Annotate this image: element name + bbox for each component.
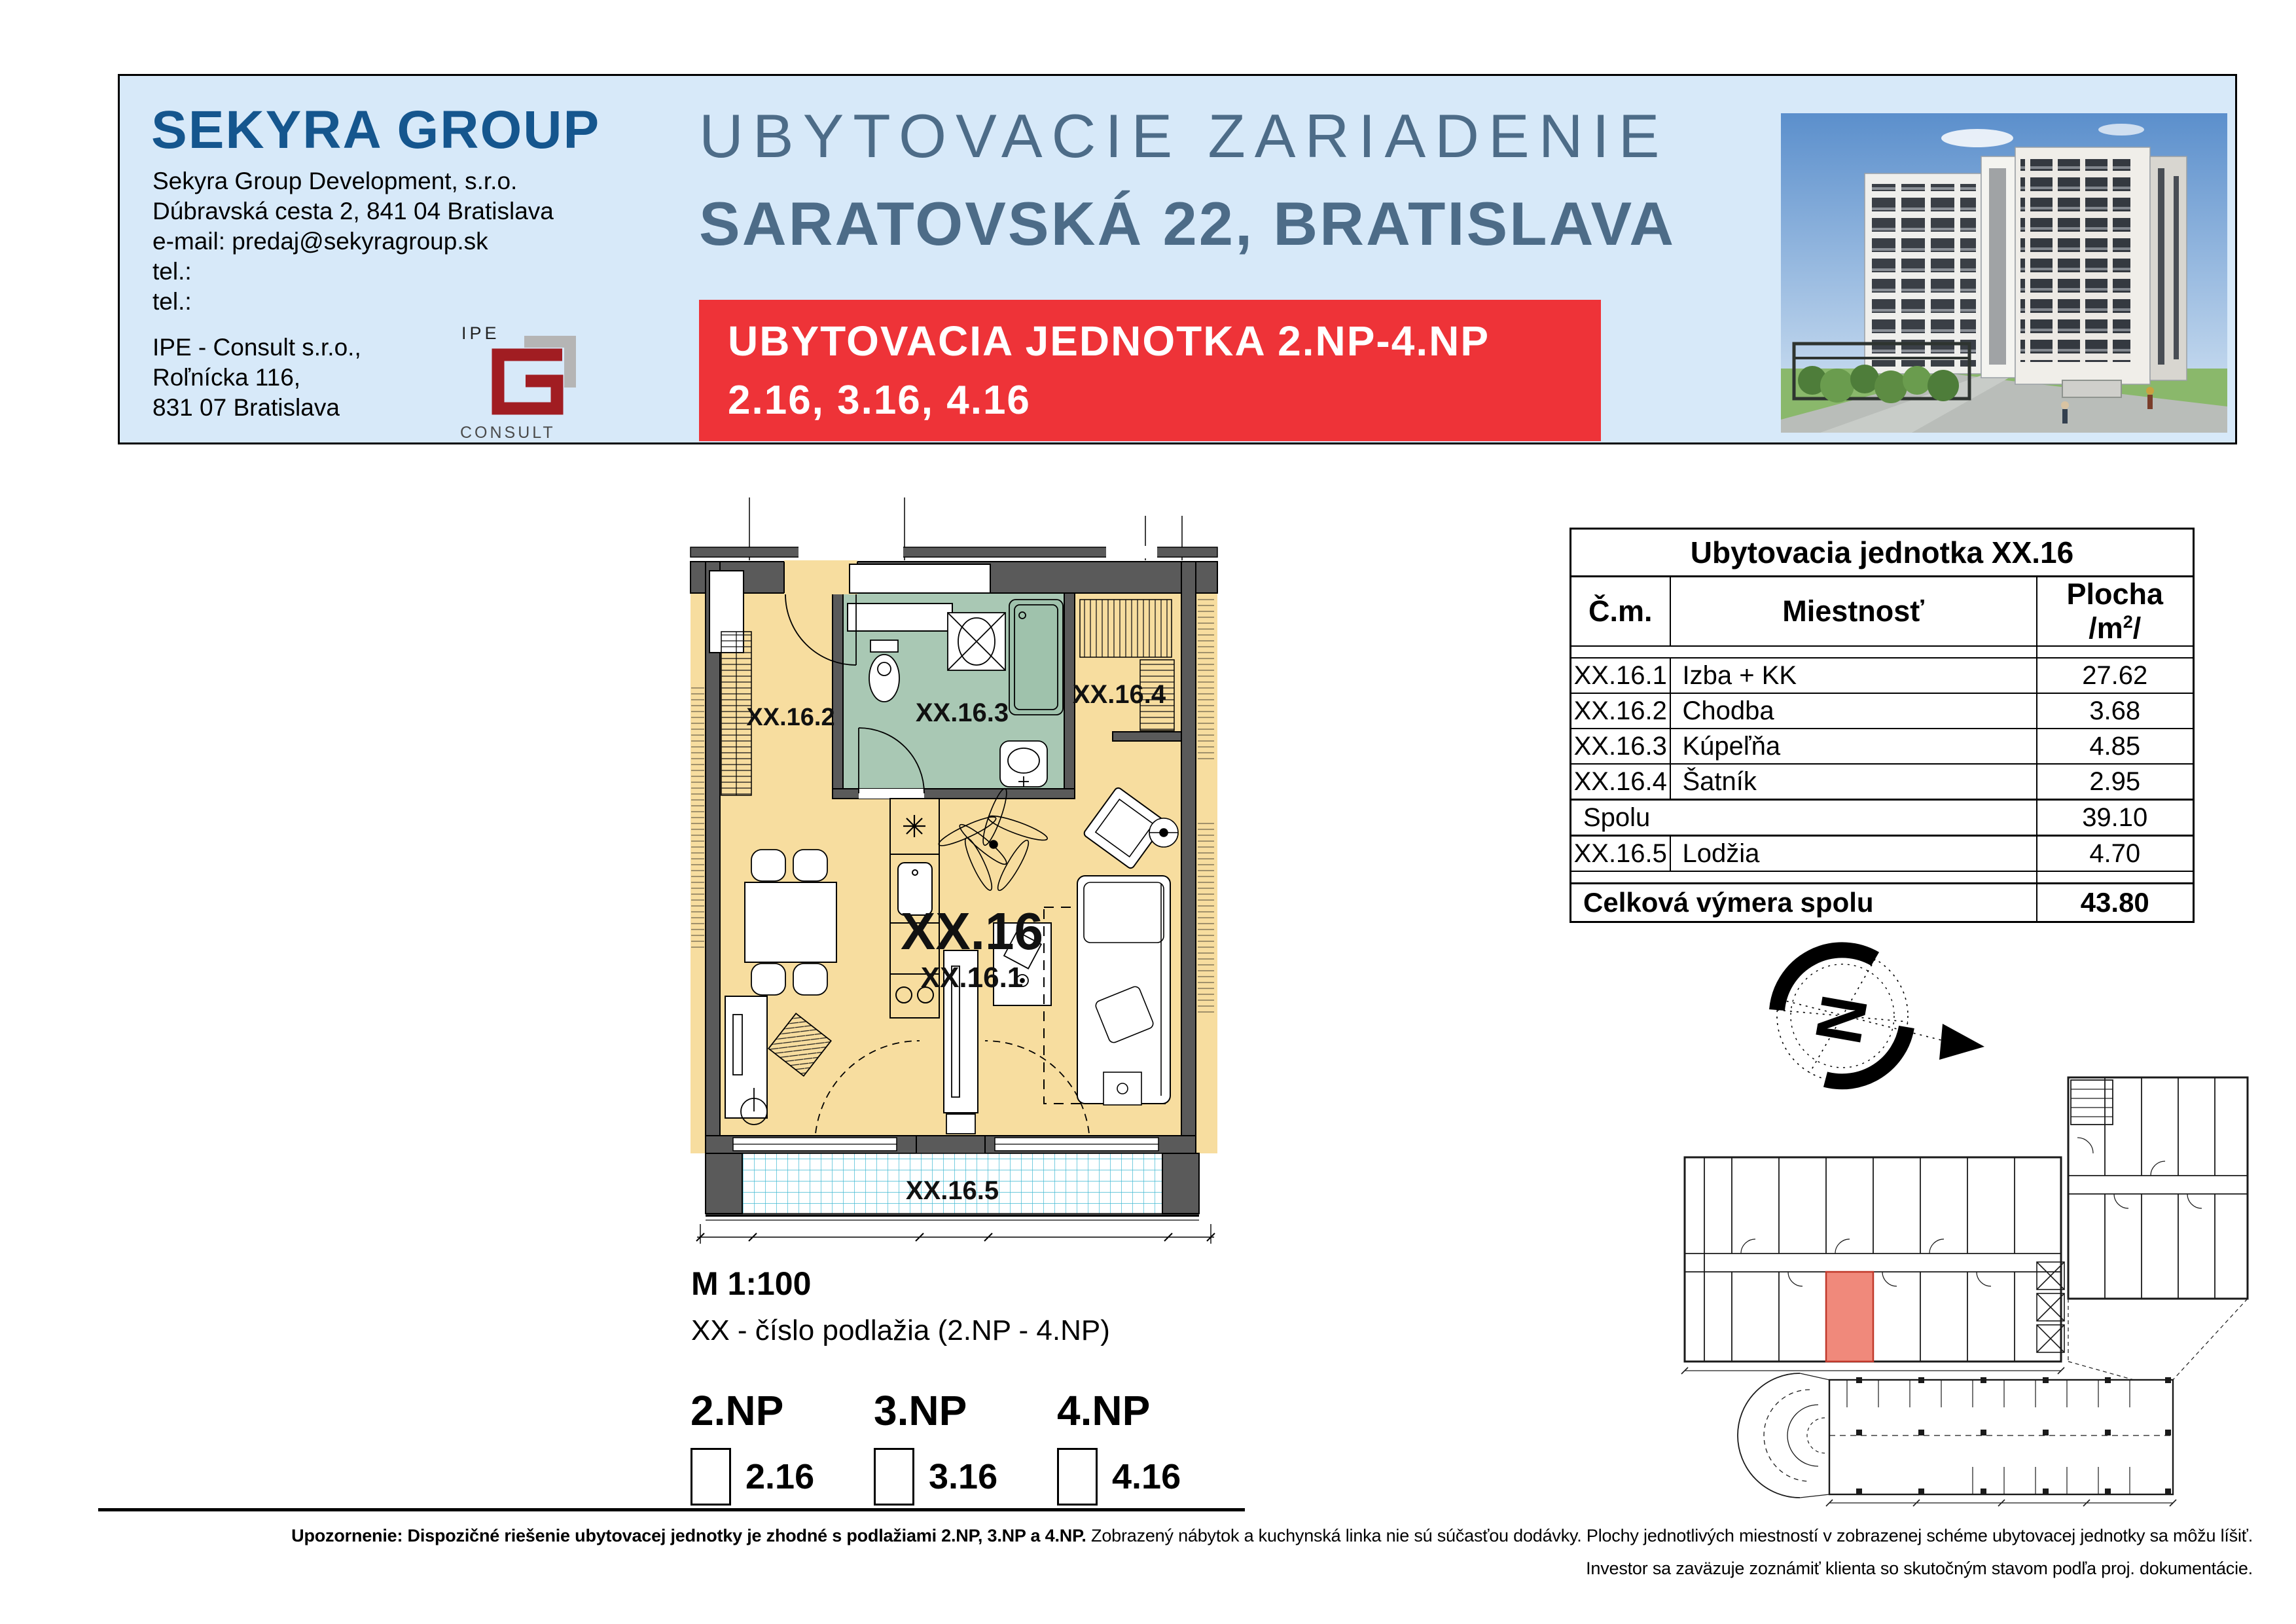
floor-unit-number: 3.16 [929,1456,997,1497]
floor-option-3np: 3.NP 3.16 [874,1386,1044,1506]
company-line: Dúbravská cesta 2, 841 04 Bratislava [152,196,554,226]
table-row: XX.16.2 Chodba 3.68 [1571,693,2194,729]
company-line: Sekyra Group Development, s.r.o. [152,166,554,196]
floor-number-note: XX - číslo podlažia (2.NP - 4.NP) [691,1314,1110,1347]
room-label-hall: XX.16.2 [746,704,834,731]
document-subtitle: SARATOVSKÁ 22, BRATISLAVA [699,189,1602,259]
room-label-closet: XX.16.4 [1073,680,1166,709]
company-address-block: Sekyra Group Development, s.r.o. Dúbravs… [152,166,554,316]
highlighted-unit [1826,1272,1873,1362]
col-header-cm: Č.m. [1571,577,1670,647]
sekyra-group-logo: SEKYRA GROUP [151,99,600,161]
table-row: XX.16.1 Izba + KK 27.62 [1571,658,2194,693]
compass-north-letter: N [1801,990,1882,1049]
partner-line: Roľnícka 116, [152,363,361,393]
footer-line-1: Upozornenie: Dispozičné riešenie ubytova… [98,1520,2253,1553]
floor-lamp [1149,818,1178,847]
floor-label: 3.NP [874,1386,1044,1435]
scale-label: M 1:100 [691,1265,811,1303]
col-header-area: Plocha /m2/ [2037,577,2194,647]
building-overview-plan [1676,1066,2258,1511]
ipe-logo-subtext: CONSULT [460,424,556,442]
table-row: XX.16.3 Kúpeľňa 4.85 [1571,729,2194,764]
table-row: XX.16.5 Lodžia 4.70 [1571,836,2194,872]
footer-disclaimer: Upozornenie: Dispozičné riešenie ubytova… [98,1520,2253,1585]
floor-label: 4.NP [1057,1386,1227,1435]
room-label-loggia: XX.16.5 [906,1176,999,1205]
table-row: XX.16.4 Šatník 2.95 [1571,764,2194,800]
unit-label: XX.16 [901,902,1043,960]
dimension-line [696,1224,1215,1244]
table-title: Ubytovacia jednotka XX.16 [1571,529,2194,577]
floor-checkbox-2np[interactable] [691,1448,731,1506]
floor-checkbox-3np[interactable] [874,1448,914,1506]
banner-label: UBYTOVACIA JEDNOTKA [728,317,1266,365]
room-label-bathroom: XX.16.3 [916,698,1009,727]
ipe-logo-icon [478,335,577,419]
ipe-consult-logo: IPE CONSULT [460,323,591,442]
sofa [1077,876,1170,1105]
area-table: Ubytovacia jednotka XX.16 Č.m. Miestnosť… [1570,528,2195,923]
unit-banner: UBYTOVACIA JEDNOTKA 2.NP-4.NP 2.16, 3.16… [699,300,1601,441]
partner-address-block: IPE - Consult s.r.o., Roľnícka 116, 831 … [152,333,361,423]
partner-line: 831 07 Bratislava [152,393,361,423]
col-header-room: Miestnosť [1670,577,2037,647]
floor-unit-number: 2.16 [745,1456,814,1497]
floor-option-2np: 2.NP 2.16 [691,1386,861,1506]
unit-floor-plan: XX.16.2 XX.16.3 XX.16.4 XX.16 XX.16.1 XX… [687,491,1224,1250]
building-render-image [1781,113,2227,433]
banner-floors: 2.NP-4.NP [1278,317,1490,365]
banner-units: 2.16, 3.16, 4.16 [728,377,1601,424]
table-subtotal-row: Spolu 39.10 [1571,800,2194,836]
header-panel: SEKYRA GROUP Sekyra Group Development, s… [118,74,2237,444]
floor-option-4np: 4.NP 4.16 [1057,1386,1227,1506]
company-line: e-mail: predaj@sekyragroup.sk [152,226,554,257]
footer-divider [98,1508,1245,1511]
floor-label: 2.NP [691,1386,861,1435]
floor-unit-number: 4.16 [1112,1456,1181,1497]
document-title: UBYTOVACIE ZARIADENIE [699,101,1602,171]
company-line: tel.: [152,287,554,317]
partner-line: IPE - Consult s.r.o., [152,333,361,363]
footer-line-2: Investor sa zaväzuje zoznámiť klienta so… [98,1553,2253,1585]
floor-checkbox-4np[interactable] [1057,1448,1098,1506]
room-label-main: XX.16.1 [921,962,1024,994]
closet-top [1080,600,1172,657]
company-line: tel.: [152,257,554,287]
